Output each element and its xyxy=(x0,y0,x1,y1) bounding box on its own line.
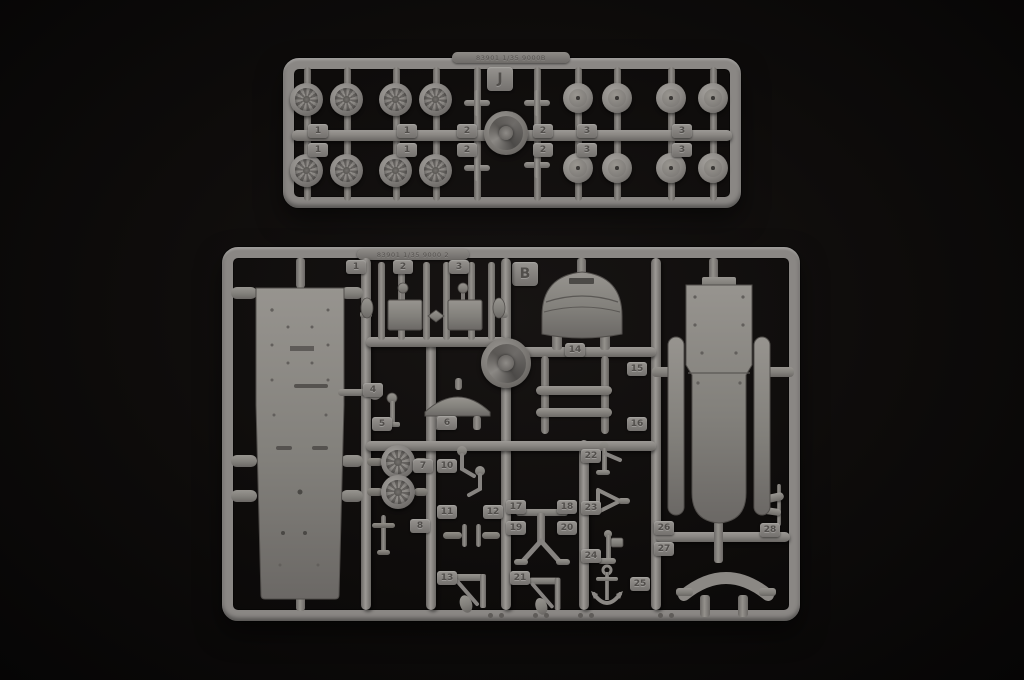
bench-parts-cluster xyxy=(360,258,508,348)
anchor-part xyxy=(588,564,626,614)
fender-arch-part xyxy=(420,376,495,432)
ejector-marks xyxy=(533,613,538,618)
runner-stub xyxy=(482,532,500,539)
ejector-marks xyxy=(578,613,583,618)
mast-part xyxy=(381,515,386,555)
part-number-tab: 1 xyxy=(346,260,366,274)
runner-stub xyxy=(443,532,462,539)
ejector-marks xyxy=(488,613,493,618)
part-number-tab: 15 xyxy=(627,362,647,376)
blade-part xyxy=(462,524,467,547)
part-number-tab: 17 xyxy=(506,500,526,514)
part-number-tab: 14 xyxy=(565,343,585,357)
part-number-tab: 18 xyxy=(557,500,577,514)
part-number-tab: 8 xyxy=(410,519,430,533)
part-number-tab: 3 xyxy=(449,260,469,274)
part-number-tab: 6 xyxy=(437,416,457,430)
part-number-tab: 25 xyxy=(630,577,650,591)
sprue-b: 83901 1/35 9000 2 B xyxy=(0,0,1024,680)
part-number-tab: 26 xyxy=(654,521,674,535)
part-number-tab: 23 xyxy=(581,501,601,515)
part-number-tab: 21 xyxy=(510,571,530,585)
runner-stub xyxy=(601,356,609,434)
part-number-tab: 28 xyxy=(760,523,780,537)
ejector-marks xyxy=(658,613,663,618)
part-number-tab: 16 xyxy=(627,417,647,431)
part-number-tab: 7 xyxy=(413,459,433,473)
flat-bar-part xyxy=(536,408,612,417)
mast-base xyxy=(377,550,390,555)
deck-part xyxy=(228,255,370,615)
runner-stub xyxy=(541,356,549,434)
runner-stub xyxy=(414,488,428,496)
part-number-tab: 27 xyxy=(654,542,674,556)
part-number-tab: 12 xyxy=(483,505,503,519)
ribbed-wheel-part xyxy=(381,475,415,509)
part-number-tab: 22 xyxy=(581,449,601,463)
part-number-tab: 10 xyxy=(437,459,457,473)
mount-assembly-part xyxy=(450,566,498,612)
part-number-tab: 4 xyxy=(363,383,383,397)
part-number-tab: 11 xyxy=(437,505,457,519)
part-number-tab: 24 xyxy=(581,549,601,563)
sprue-letter-tab: B xyxy=(512,262,538,286)
ribbed-wheel-part xyxy=(381,445,415,479)
part-number-tab: 19 xyxy=(506,521,526,535)
part-number-tab: 20 xyxy=(557,521,577,535)
mast-crossbar xyxy=(372,523,395,528)
mount-assembly-part xyxy=(524,570,574,614)
part-number-tab: 2 xyxy=(393,260,413,274)
part-number-tab: 5 xyxy=(372,417,392,431)
sprue-photo: 83901 1/35 9000B J xyxy=(0,0,1024,680)
blade-part xyxy=(476,524,481,547)
part-number-tab: 13 xyxy=(437,571,457,585)
flat-bar-part xyxy=(536,386,612,395)
